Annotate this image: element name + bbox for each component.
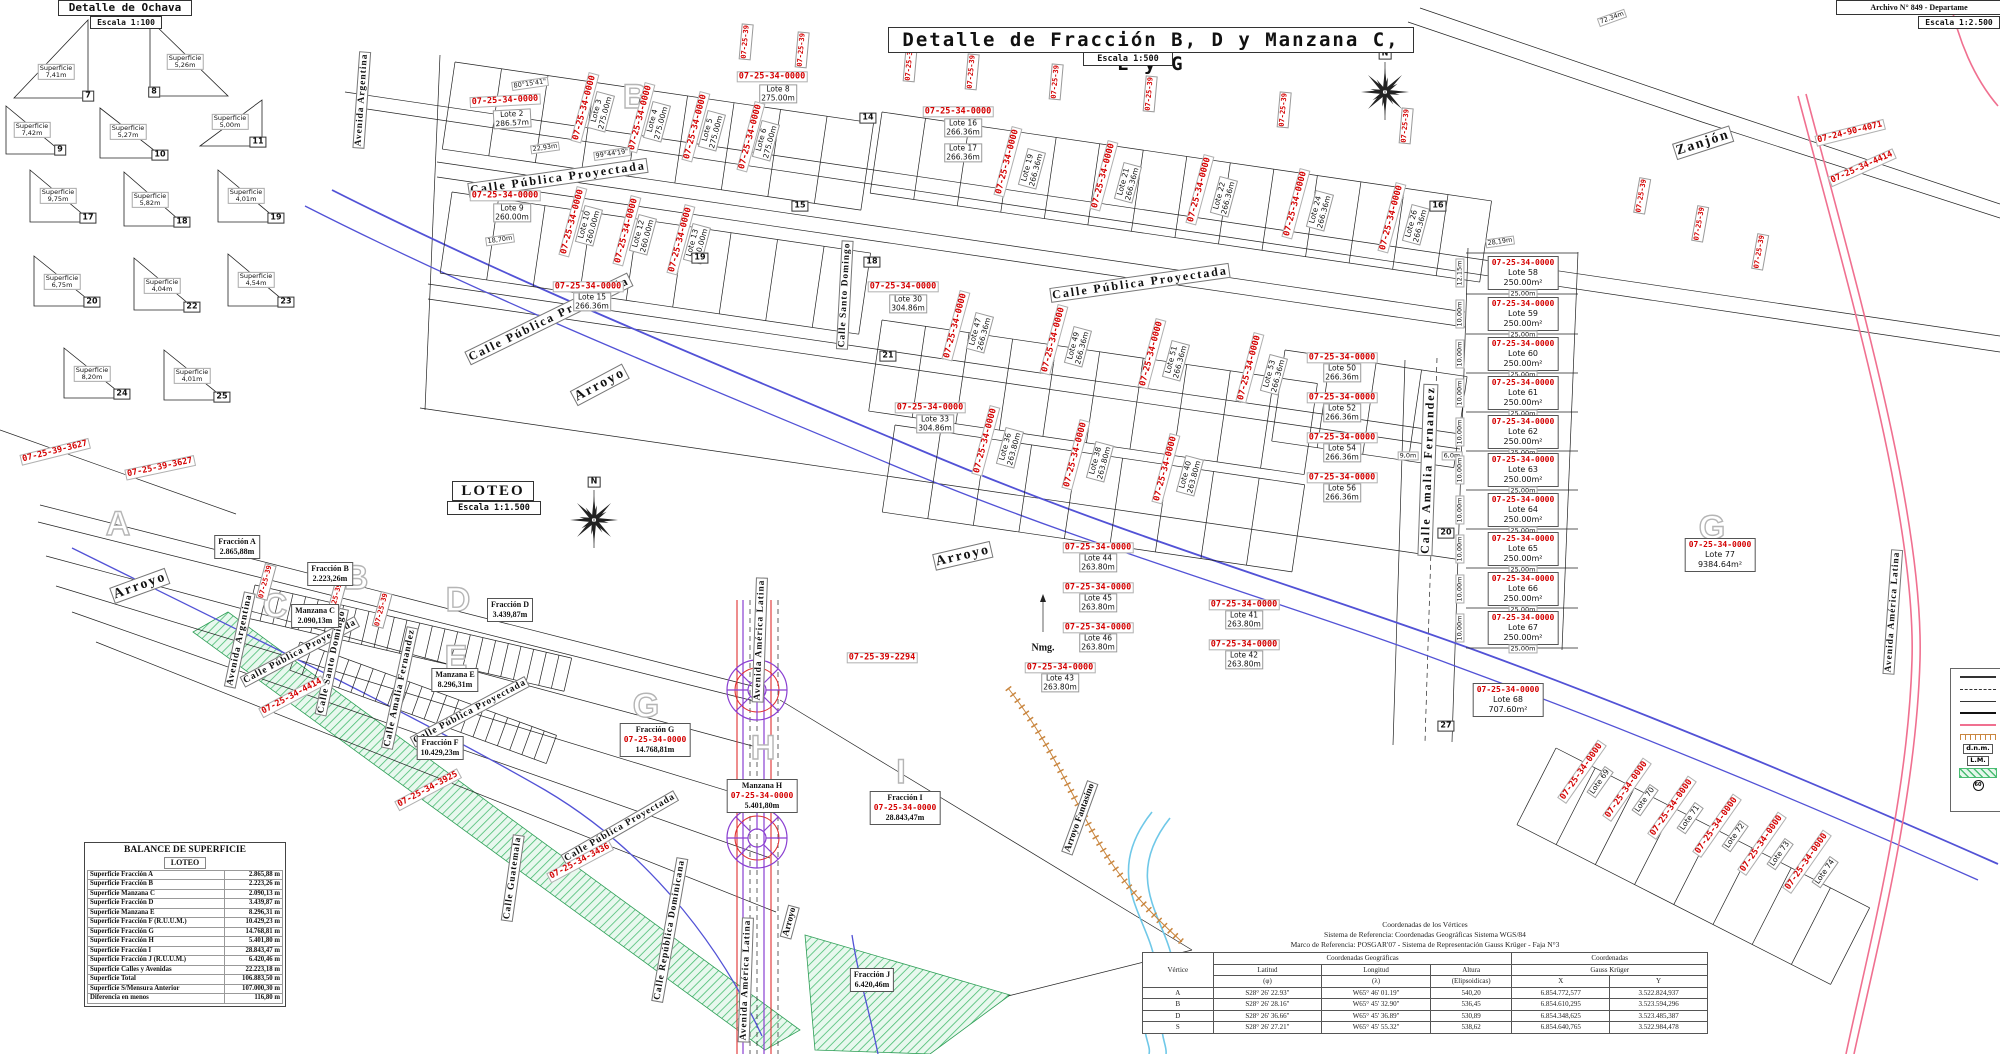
parcel-code: 07-25-34-0000 (1063, 622, 1134, 633)
ochava-number: 11 (249, 137, 266, 148)
watercourse-name: Zanjón (1672, 126, 1734, 161)
coords-cell: Coordenadas (1512, 953, 1708, 965)
street-name: Avenida América Latina (752, 577, 769, 702)
dimension-label: 12,15m (1455, 259, 1464, 288)
balance-value: 2.090,13 m (225, 889, 283, 898)
vertex-number: 21 (879, 351, 896, 362)
ochava-superficie-label: Superficie6,75m (44, 274, 81, 290)
ochava-superficie-label: Superficie5,00m (212, 114, 249, 130)
coords-cell: B (1143, 999, 1214, 1011)
coords-cell: S28° 26' 22.93" (1213, 987, 1322, 999)
parcel-code: 07-25-34-0000 (1209, 599, 1280, 610)
legend-line-symbol (1960, 676, 1996, 678)
parcel-code: 07-25-34-0000 (895, 402, 966, 413)
archive-title: Archivo N° 849 - Departame (1836, 0, 2000, 15)
coords-cell: S28° 26' 28.16" (1213, 999, 1322, 1011)
balance-label: Superficie Fracción D (88, 899, 225, 908)
parcel-code: 07-25-34-4414 (1827, 148, 1896, 187)
map-labels-layer: Calle Pública ProyectadaCalle Pública Pr… (0, 0, 2000, 1054)
balance-label: Superficie Fracción I (88, 946, 225, 955)
legend-dashed-symbol (1960, 689, 1996, 690)
legend-road-symbol (1960, 724, 1996, 726)
vertex-number: 16 (1429, 201, 1446, 212)
lot-label: Lote 38263.80m (1086, 441, 1114, 482)
balance-title: BALANCE DE SUPERFICIE (87, 845, 283, 856)
coords-cell: S28° 26' 27.21" (1213, 1022, 1322, 1034)
balance-row: Superficie Fracción J (R.U.U.M.)6.420,46… (88, 956, 283, 965)
lot-label: 07-25-34-0000Lote 60250.00m² (1488, 337, 1559, 371)
lot-label: 07-25-34-0000Lote 779384.64m² (1685, 538, 1756, 572)
fraction-label: Fracción F10.429,23m (417, 736, 464, 760)
dimension-label: 10,00m (1455, 379, 1464, 408)
lot-label: Lote 45263.80m (1079, 593, 1117, 612)
parcel-code: 07-25-34-0000 (1025, 662, 1096, 673)
dimension-label: 28,19m (1485, 235, 1515, 248)
parcel-code: 07-25-34-0000 (737, 71, 808, 82)
ochava-superficie-label: Superficie7,42m (14, 122, 51, 138)
balance-row: Superficie Calles y Avenidas22.223,18 m (88, 965, 283, 974)
coords-cell: 3.522.984,478 (1610, 1022, 1708, 1034)
dimension-label: 25,00m (1509, 644, 1538, 653)
ochava-superficie-label: Superficie5,26m (167, 54, 204, 70)
parcel-code: 07-25-39 (1633, 177, 1651, 214)
lot-label: Lote 41263.80m (1225, 610, 1263, 629)
coords-cell: 536,45 (1430, 999, 1511, 1011)
street-name: Calle Santo Domingo (836, 240, 854, 350)
parcel-code: 07-25-39 (1049, 64, 1064, 101)
lot-label: 07-25-34-0000Lote 61250.00m² (1488, 376, 1559, 410)
parcel-code: 07-24-90-4071 (1814, 119, 1885, 147)
vertex-coordinates-table: Coordenadas de los VérticesSistema de Re… (1142, 920, 1708, 1034)
parcel-code: 07-25-34-0000 (1307, 392, 1378, 403)
legend-thin-line-symbol (1960, 701, 1996, 702)
balance-label: Superficie Calles y Avenidas (88, 965, 225, 974)
balance-value: 107.000,30 m (225, 984, 283, 993)
loteo-scale: Escala 1:1.500 (447, 501, 541, 515)
balance-subtitle: LOTEO (164, 857, 206, 869)
legend-arrow-symbol (1960, 712, 1996, 714)
parcel-code: 07-25-34-0000 (941, 290, 970, 361)
coords-cell: 6.854.348,625 (1512, 1010, 1610, 1022)
parcel-code: 07-25-34-0000 (1281, 168, 1310, 239)
parcel-code: 07-25-39 (1399, 108, 1414, 145)
parcel-code: 07-25-39 (1751, 233, 1769, 270)
watercourse-name: Arroyo (932, 541, 994, 571)
block-letter: H (750, 731, 777, 765)
parcel-code: 07-25-39 (1691, 205, 1709, 242)
ochava-number: 19 (267, 213, 284, 224)
balance-row: Superficie Fracción H5.401,80 m (88, 937, 283, 946)
balance-value: 106.883,50 m (225, 975, 283, 984)
balance-value: 10.429,23 m (225, 918, 283, 927)
legend-dnm-label: d.n.m. (1963, 744, 1992, 753)
vertex-number: 15 (791, 201, 808, 212)
block-letter: A (105, 507, 132, 541)
coords-table-title: Coordenadas de los Vértices (1142, 920, 1708, 930)
ochava-scale: Escala 1:100 (90, 16, 162, 29)
ochava-superficie-label: Superficie9,75m (40, 188, 77, 204)
coords-cell: 3.523.594,296 (1610, 999, 1708, 1011)
lot-label: 07-25-34-0000Lote 63250.00m² (1488, 453, 1559, 487)
balance-label: Superficie Fracción B (88, 880, 225, 889)
parcel-code: 07-25-39 (1143, 76, 1158, 113)
lot-label: Lote 22266.36m (1210, 176, 1238, 217)
vertex-number: 19 (691, 253, 708, 264)
balance-row: Superficie S/Mensura Anterior107.000,30 … (88, 984, 283, 993)
lot-label: Lote 30304.86m (889, 294, 927, 313)
parcel-code: 07-25-34-0000 (1061, 419, 1090, 490)
fraction-label: Fracción G07-25-34-000014.768,81m (620, 723, 691, 757)
lot-label: Lote 49266.36m (1064, 326, 1092, 367)
balance-value: 28.843,47 m (225, 946, 283, 955)
legend-circle-symbol: 60 (1973, 780, 1984, 791)
ochava-number: 8 (148, 87, 160, 98)
balance-row: Superficie Fracción A2.865,88 m (88, 870, 283, 879)
parcel-code: 07-25-34-0000 (1063, 582, 1134, 593)
parcel-code: 07-25-39 (965, 54, 980, 91)
lot-label: Lote 44263.80m (1079, 553, 1117, 572)
fraction-label: Fracción J6.420,46m (850, 968, 894, 992)
coords-cell: W65° 46' 01.19" (1322, 987, 1431, 999)
watercourse-name: Arroyo Fantasino (1061, 780, 1099, 856)
coords-cell: S28° 26' 36.66" (1213, 1010, 1322, 1022)
ochava-number: 7 (82, 91, 94, 102)
watercourse-name: Arroyo (780, 904, 801, 939)
coords-cell: 6.854.640,765 (1512, 1022, 1610, 1034)
lot-label: 07-25-34-0000Lote 65250.00m² (1488, 532, 1559, 566)
parcel-code: 07-25-34-0000 (469, 93, 540, 108)
coords-cell: A (1143, 987, 1214, 999)
ochava-superficie-label: Superficie4,01m (174, 368, 211, 384)
legend-greenarea-symbol (1959, 768, 1997, 778)
coords-cell: 3.522.824,937 (1610, 987, 1708, 999)
balance-label: Superficie Fracción J (R.U.U.M.) (88, 956, 225, 965)
fraction-label: Manzana E8.296,31m (431, 668, 478, 692)
coords-cell: Altura (1430, 964, 1511, 976)
parcel-code: 07-25-34-3925 (394, 768, 462, 811)
coords-cell: (φ) (1213, 976, 1322, 988)
parcel-code: 07-25-34-0000 (1307, 352, 1378, 363)
parcel-code: 07-25-39-2294 (847, 652, 918, 663)
lot-label: Lote 47266.36m (966, 312, 994, 353)
lot-label: Lote 33304.86m (916, 414, 954, 433)
parcel-code: 07-25-34-0000 (553, 281, 624, 292)
surface-balance-table: BALANCE DE SUPERFICIELOTEOSuperficie Fra… (84, 842, 286, 1007)
parcel-code: 07-25-34-0000 (1089, 140, 1118, 211)
coords-cell: S (1143, 1022, 1214, 1034)
ochava-number: 24 (113, 389, 130, 400)
lot-label: Lote 16266.36m (944, 118, 982, 137)
street-name: Avenida Argentina (352, 51, 371, 149)
legend-box: d.n.m. L.M. 60 (1950, 668, 2000, 812)
lot-label: Lote 9260.00m (493, 203, 531, 222)
balance-label: Superficie Total (88, 975, 225, 984)
parcel-code: 07-25-34-0000 (868, 281, 939, 292)
fraction-label: Fracción B2.223,26m (307, 562, 353, 586)
dimension-label: 9,0m (1398, 451, 1419, 460)
street-name: Avenida América Latina (738, 917, 755, 1042)
watercourse-name: Arroyo (109, 568, 171, 605)
ochava-number: 22 (183, 302, 200, 313)
dimension-label: 10,00m (1455, 456, 1464, 485)
ochava-number: 23 (277, 297, 294, 308)
legend-tie-symbol (1960, 734, 1996, 740)
balance-row: Superficie Fracción F (R.U.U.M.)10.429,2… (88, 918, 283, 927)
parcel-code: 07-25-34-0000 (971, 405, 1000, 476)
coords-cell: 6.854.772,577 (1512, 987, 1610, 999)
dimension-label: 10,00m (1455, 340, 1464, 369)
coords-cell: X (1512, 976, 1610, 988)
vertex-number: 20 (1437, 528, 1454, 539)
balance-label: Superficie Fracción G (88, 927, 225, 936)
parcel-code: 07-25-34-0000 (1151, 433, 1180, 504)
balance-value: 8.296,31 m (225, 908, 283, 917)
magnetic-north-label: Nmg. (1030, 643, 1055, 654)
lot-label: Lote 54266.36m (1323, 443, 1361, 462)
street-name: Calle Guatemala (501, 834, 525, 922)
coords-cell: W65° 45' 36.89" (1322, 1010, 1431, 1022)
lot-label: Lote 15266.36m (573, 292, 611, 311)
street-name: Calle Pública Proyectada (1049, 263, 1230, 303)
lot-label: 07-25-34-0000Lote 62250.00m² (1488, 415, 1559, 449)
coords-cell: 530,89 (1430, 1010, 1511, 1022)
parcel-code: 07-25-39 (739, 24, 754, 61)
watercourse-name: Arroyo (570, 363, 631, 406)
parcel-code: 07-25-39 (1277, 92, 1292, 129)
lot-label: Lote 73 (1766, 838, 1793, 870)
ochava-superficie-label: Superficie5,27m (110, 124, 147, 140)
legend-lm-label: L.M. (1967, 756, 1989, 765)
balance-label: Superficie Manzana C (88, 889, 225, 898)
lot-label: 07-25-34-0000Lote 66250.00m² (1488, 572, 1559, 606)
vertex-number: 18 (863, 257, 880, 268)
ochava-number: 18 (173, 217, 190, 228)
balance-label: Superficie S/Mensura Anterior (88, 984, 225, 993)
street-name: Calle Amalia Fernandez (1417, 384, 1438, 556)
fraction-label: Manzana C2.090,13m (291, 604, 339, 628)
dimension-label: 10,00m (1455, 535, 1464, 564)
coords-cell: W65° 45' 32.90" (1322, 999, 1431, 1011)
lot-label: Lote 40263.80m (1176, 455, 1204, 496)
street-name: Calle Amalia Fernandez (381, 626, 419, 750)
dimension-label: 72.34m (1597, 9, 1627, 27)
parcel-code: 07-25-34-0000 (993, 126, 1022, 197)
loteo-title: LOTEO (452, 481, 534, 501)
fraction-label: Fracción A2.865,88m (214, 535, 260, 559)
main-scale: Escala 1:500 (1083, 52, 1173, 66)
archive-scale: Escala 1:2.500 (1918, 16, 2000, 29)
block-letter: I (895, 755, 906, 789)
lot-label: Lote 2286.57m (493, 108, 532, 129)
street-name: Avenida América Latina (1882, 549, 1903, 675)
balance-value: 6.420,46 m (225, 956, 283, 965)
balance-value: 22.223,18 m (225, 965, 283, 974)
balance-label: Superficie Fracción A (88, 870, 225, 879)
coords-cell: Longitud (1322, 964, 1431, 976)
lot-label: Lote 70 (1631, 784, 1658, 816)
balance-label: Superficie Fracción F (R.U.U.M.) (88, 918, 225, 927)
fraction-label: Fracción I07-25-34-000028.843,47m (870, 791, 941, 825)
balance-value: 2.223,26 m (225, 880, 283, 889)
lot-label: Lote 74 (1811, 856, 1838, 888)
lot-label: Lote 52266.36m (1323, 403, 1361, 422)
lot-label: Lote 21266.36m (1114, 162, 1142, 203)
parcel-code: 07-25-39 (795, 32, 810, 69)
balance-value: 2.865,88 m (225, 870, 283, 879)
cadastral-plat-map: Detalle de Ochava Escala 1:100 Detalle d… (0, 0, 2000, 1054)
lot-label: Lote 51266.36m (1162, 340, 1190, 381)
block-letter: G (632, 689, 660, 723)
balance-row: Superficie Fracción I28.843,47 m (88, 946, 283, 955)
dimension-label: 80°15'41" (511, 77, 549, 91)
ochava-number: 25 (213, 392, 230, 403)
parcel-code: 07-25-34-0000 (923, 106, 994, 117)
street-name: Calle Pública Proyectada (561, 790, 680, 866)
block-letter: D (445, 583, 472, 617)
coords-cell: Y (1610, 976, 1708, 988)
parcel-code: 07-25-39 (372, 591, 393, 629)
parcel-code: 07-25-34-0000 (1209, 639, 1280, 650)
balance-value: 14.768,81 m (225, 927, 283, 936)
lot-label: 07-25-34-0000Lote 59250.00m² (1488, 297, 1559, 331)
lot-label: Lote 42263.80m (1225, 650, 1263, 669)
lot-label: Lote 53266.36m (1260, 354, 1288, 395)
lot-label: 07-25-34-0000Lote 58250.00m² (1488, 256, 1559, 290)
lot-label: Lote 72 (1721, 820, 1748, 852)
parcel-code: 07-25-34-0000 (1039, 304, 1068, 375)
ochava-superficie-label: Superficie7,41m (38, 64, 75, 80)
coords-cell: Gauss Krüger (1512, 964, 1708, 976)
balance-value: 116,80 m (225, 994, 283, 1003)
lot-label: Lote 69 (1586, 766, 1613, 798)
coords-cell: Coordenadas Geográficas (1213, 953, 1512, 965)
dimension-label: 10,00m (1455, 614, 1464, 643)
coords-cell: (Elipsoidicas) (1430, 976, 1511, 988)
balance-label: Superficie Manzana E (88, 908, 225, 917)
ochava-superficie-label: Superficie4,04m (144, 278, 181, 294)
parcel-code: 07-25-39-3627 (19, 438, 90, 466)
vertex-number: 14 (859, 113, 876, 124)
coords-cell: 3.523.485,387 (1610, 1010, 1708, 1022)
coords-cell: 538,62 (1430, 1022, 1511, 1034)
dimension-label: 10,00m (1455, 300, 1464, 329)
ochava-superficie-label: Superficie8,20m (74, 366, 111, 382)
parcel-code: 07-25-34-0000 (470, 190, 541, 201)
dimension-label: 18,70m (485, 233, 515, 246)
parcel-code: 07-25-34-0000 (1377, 182, 1406, 253)
dimension-label: 99°44'19" (593, 147, 631, 161)
lot-label: Lote 46263.80m (1079, 633, 1117, 652)
parcel-code: 07-25-39-3627 (124, 455, 195, 481)
north-label: N (588, 477, 601, 488)
balance-row: Superficie Manzana C2.090,13 m (88, 889, 283, 898)
ochava-title: Detalle de Ochava (58, 0, 192, 16)
lot-label: Lote 43263.80m (1041, 673, 1079, 692)
ochava-number: 20 (83, 297, 100, 308)
parcel-code: 07-25-34-0000 (1307, 472, 1378, 483)
balance-value: 5.401,80 m (225, 937, 283, 946)
vertex-number: 27 (1437, 721, 1454, 732)
coords-cell: 540,20 (1430, 987, 1511, 999)
lot-label: Lote 71 (1676, 802, 1703, 834)
ochava-superficie-label: Superficie4,01m (228, 188, 265, 204)
balance-row: Diferencia en menos116,80 m (88, 994, 283, 1003)
dimension-label: 22,93m (530, 141, 560, 154)
lot-label: Lote 56266.36m (1323, 483, 1361, 502)
dimension-label: 10,00m (1455, 575, 1464, 604)
coords-cell: 6.854.610,295 (1512, 999, 1610, 1011)
balance-label: Diferencia en menos (88, 994, 225, 1003)
balance-value: 3.439,87 m (225, 899, 283, 908)
fraction-label: Manzana H07-25-34-00005.401,80m (727, 779, 798, 813)
parcel-code: 07-25-34-0000 (1235, 332, 1264, 403)
coords-cell: (λ) (1322, 976, 1431, 988)
ochava-number: 17 (79, 213, 96, 224)
lot-label: Lote 17266.36m (944, 143, 982, 162)
lot-label: Lote 19266.36m (1018, 148, 1046, 189)
parcel-code: 07-25-34-0000 (1185, 154, 1214, 225)
coords-cell: W65° 45' 55.32" (1322, 1022, 1431, 1034)
main-title: Detalle de Fracción B, D y Manzana C, E … (888, 27, 1414, 53)
lot-label: Lote 24266.36m (1306, 190, 1334, 231)
coords-table-title: Marco de Referencia: POSGAR'07 - Sistema… (1142, 940, 1708, 950)
parcel-code: 07-25-34-0000 (1307, 432, 1378, 443)
ochava-number: 9 (54, 145, 66, 156)
coords-cell: Latitud (1213, 964, 1322, 976)
ochava-superficie-label: Superficie5,82m (132, 192, 169, 208)
balance-row: Superficie Total106.883,50 m (88, 975, 283, 984)
balance-label: Superficie Fracción H (88, 937, 225, 946)
street-name: Calle República Dominicana (651, 857, 689, 1003)
fraction-label: Fracción D3.439,87m (487, 598, 533, 622)
lot-label: Lote 50266.36m (1323, 363, 1361, 382)
balance-row: Superficie Fracción G14.768,81 m (88, 927, 283, 936)
coords-cell: D (1143, 1010, 1214, 1022)
lot-label: Lote 26266.36m (1402, 204, 1430, 245)
lot-label: 07-25-34-0000Lote 64250.00m² (1488, 493, 1559, 527)
balance-row: Superficie Fracción B2.223,26 m (88, 880, 283, 889)
dimension-label: 10,00m (1455, 496, 1464, 525)
lot-label: 07-25-34-0000Lote 68707.60m² (1473, 683, 1544, 717)
dimension-label: 10,00m (1455, 418, 1464, 447)
balance-row: Superficie Manzana E8.296,31 m (88, 908, 283, 917)
balance-row: Superficie Fracción D3.439,87 m (88, 899, 283, 908)
lot-label: Lote 8275.00m (759, 84, 797, 103)
parcel-code: 07-25-34-0000 (1063, 542, 1134, 553)
coords-table-title: Sistema de Referencia: Coordenadas Geogr… (1142, 930, 1708, 940)
parcel-code: 07-25-34-0000 (1137, 318, 1166, 389)
coords-cell: Vértice (1143, 953, 1214, 988)
lot-label: Lote 36263.80m (996, 427, 1024, 468)
ochava-number: 10 (151, 150, 168, 161)
lot-label: 07-25-34-0000Lote 67250.00m² (1488, 611, 1559, 645)
ochava-superficie-label: Superficie4,54m (238, 272, 275, 288)
